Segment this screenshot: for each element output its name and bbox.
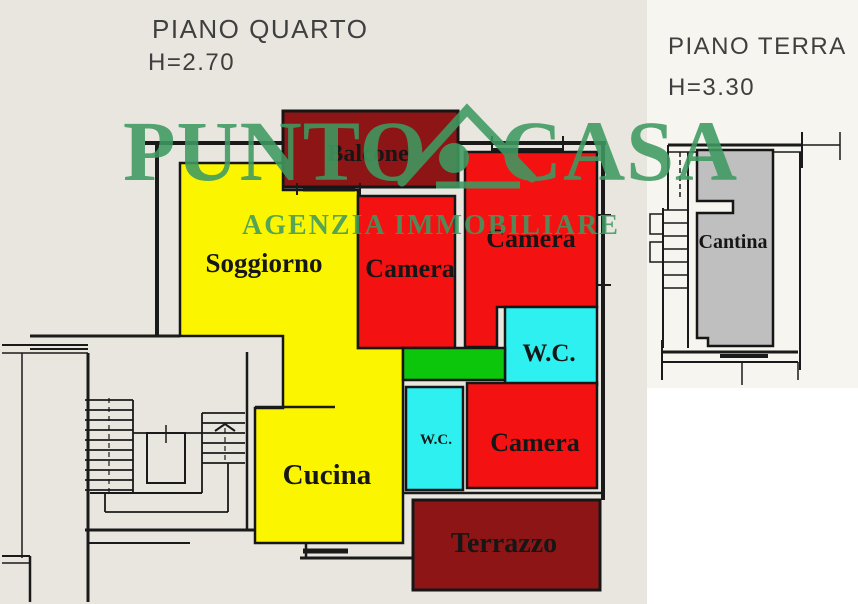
label-terrazzo: Terrazzo bbox=[451, 528, 557, 559]
watermark-punto: PUNTO bbox=[123, 103, 427, 199]
label-cantina: Cantina bbox=[699, 231, 768, 253]
label-wc-main: W.C. bbox=[522, 340, 575, 367]
room-disimpegno bbox=[403, 348, 505, 380]
label-wc-small: W.C. bbox=[420, 432, 452, 448]
watermark-tagline: AGENZIA IMMOBILIARE bbox=[242, 210, 620, 241]
label-cucina: Cucina bbox=[283, 459, 372, 491]
label-camera-center: Camera bbox=[365, 254, 455, 283]
watermark-casa: CASA bbox=[500, 103, 738, 199]
piano-terra-title: PIANO TERRA bbox=[668, 33, 847, 60]
piano-quarto-height: H=2.70 bbox=[148, 49, 235, 76]
label-camera-bottom: Camera bbox=[490, 428, 580, 457]
piano-terra-height: H=3.30 bbox=[668, 74, 755, 101]
floorplan-svg: Balcone Soggiorno Camera Camera W.C. W.C… bbox=[0, 0, 858, 604]
floorplan-scan: Balcone Soggiorno Camera Camera W.C. W.C… bbox=[0, 0, 858, 604]
label-soggiorno: Soggiorno bbox=[205, 248, 322, 278]
piano-quarto-title: PIANO QUARTO bbox=[152, 14, 368, 44]
